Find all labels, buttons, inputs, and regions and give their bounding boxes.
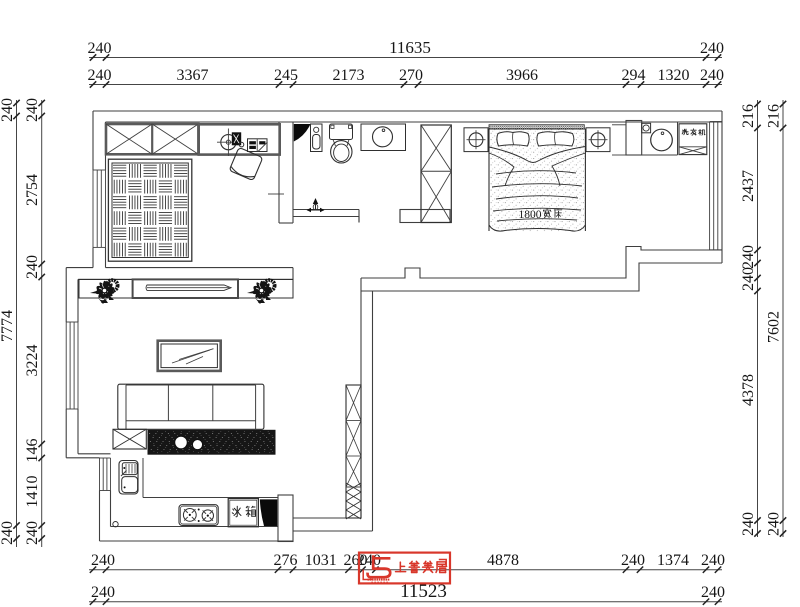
- svg-text:240: 240: [740, 267, 757, 291]
- svg-text:1410: 1410: [24, 476, 41, 508]
- svg-text:7774: 7774: [0, 310, 16, 342]
- svg-text:276: 276: [274, 552, 298, 569]
- svg-text:240: 240: [88, 67, 112, 84]
- svg-text:240: 240: [700, 40, 724, 57]
- svg-text:1800: 1800: [519, 209, 542, 221]
- svg-text:294: 294: [622, 67, 646, 84]
- svg-text:240: 240: [740, 245, 757, 269]
- svg-text:216: 216: [766, 104, 783, 128]
- svg-text:1031: 1031: [305, 552, 337, 569]
- svg-text:146: 146: [24, 439, 41, 463]
- svg-text:240: 240: [357, 552, 381, 569]
- svg-text:1320: 1320: [658, 67, 690, 84]
- svg-text:240: 240: [91, 584, 115, 601]
- svg-text:240: 240: [88, 40, 112, 57]
- svg-text:240: 240: [701, 584, 725, 601]
- svg-text:240: 240: [621, 552, 645, 569]
- svg-text:240: 240: [701, 552, 725, 569]
- svg-text:240: 240: [766, 512, 783, 536]
- svg-text:4878: 4878: [487, 552, 519, 569]
- svg-text:3367: 3367: [177, 67, 209, 84]
- svg-text:3224: 3224: [24, 345, 41, 377]
- svg-text:240: 240: [0, 521, 16, 545]
- svg-text:3966: 3966: [506, 67, 538, 84]
- svg-text:1374: 1374: [657, 552, 689, 569]
- svg-text:245: 245: [274, 67, 298, 84]
- svg-text:4378: 4378: [740, 374, 757, 406]
- svg-text:240: 240: [91, 552, 115, 569]
- svg-text:7602: 7602: [766, 311, 783, 343]
- svg-text:240: 240: [0, 98, 16, 122]
- svg-text:240: 240: [24, 98, 41, 122]
- svg-text:11635: 11635: [389, 38, 431, 57]
- svg-text:240: 240: [700, 67, 724, 84]
- svg-text:240: 240: [24, 521, 41, 545]
- svg-text:2754: 2754: [24, 174, 41, 206]
- svg-text:2437: 2437: [740, 170, 757, 202]
- svg-text:216: 216: [740, 104, 757, 128]
- svg-text:270: 270: [399, 67, 423, 84]
- svg-text:240: 240: [24, 255, 41, 279]
- svg-text:240: 240: [740, 512, 757, 536]
- svg-text:2173: 2173: [333, 67, 365, 84]
